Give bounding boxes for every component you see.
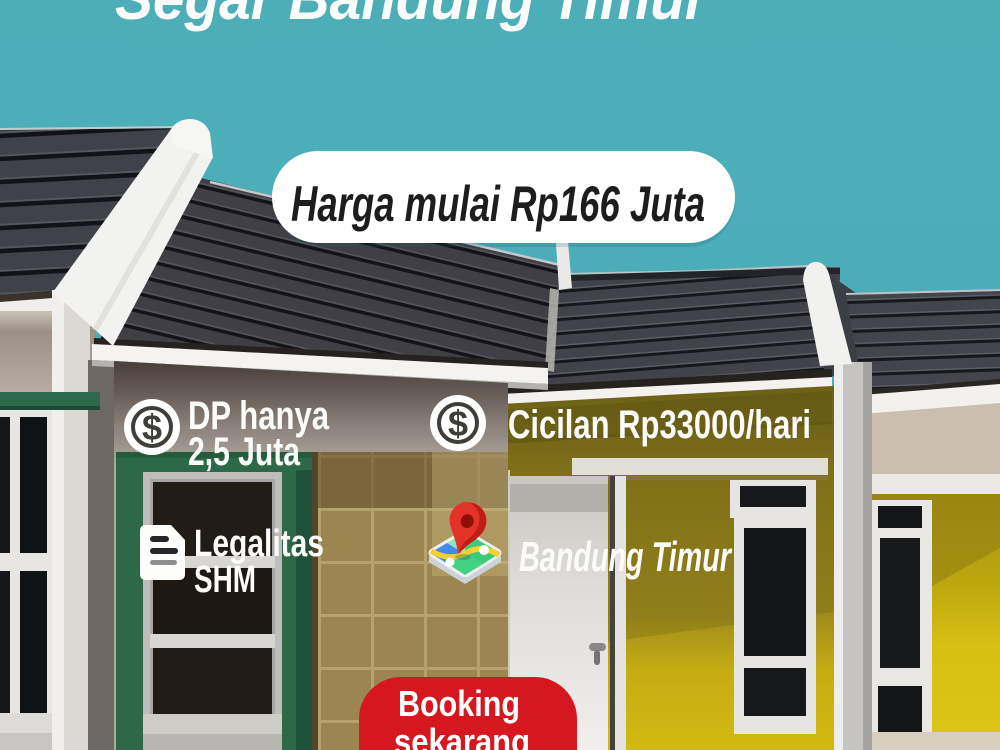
svg-text:$: $ bbox=[142, 407, 162, 448]
svg-text:SHM: SHM bbox=[194, 559, 256, 601]
svg-text:Segar Bandung Timur: Segar Bandung Timur bbox=[115, 0, 710, 32]
svg-text:Harga mulai Rp166 Juta: Harga mulai Rp166 Juta bbox=[291, 176, 705, 232]
svg-text:2,5 Juta: 2,5 Juta bbox=[188, 430, 301, 474]
svg-text:sekarang: sekarang bbox=[394, 721, 530, 750]
svg-text:$: $ bbox=[448, 403, 468, 444]
svg-text:Bandung Timur: Bandung Timur bbox=[519, 533, 733, 580]
svg-text:Cicilan Rp33000/hari: Cicilan Rp33000/hari bbox=[508, 403, 811, 447]
svg-text:Booking: Booking bbox=[398, 683, 520, 724]
